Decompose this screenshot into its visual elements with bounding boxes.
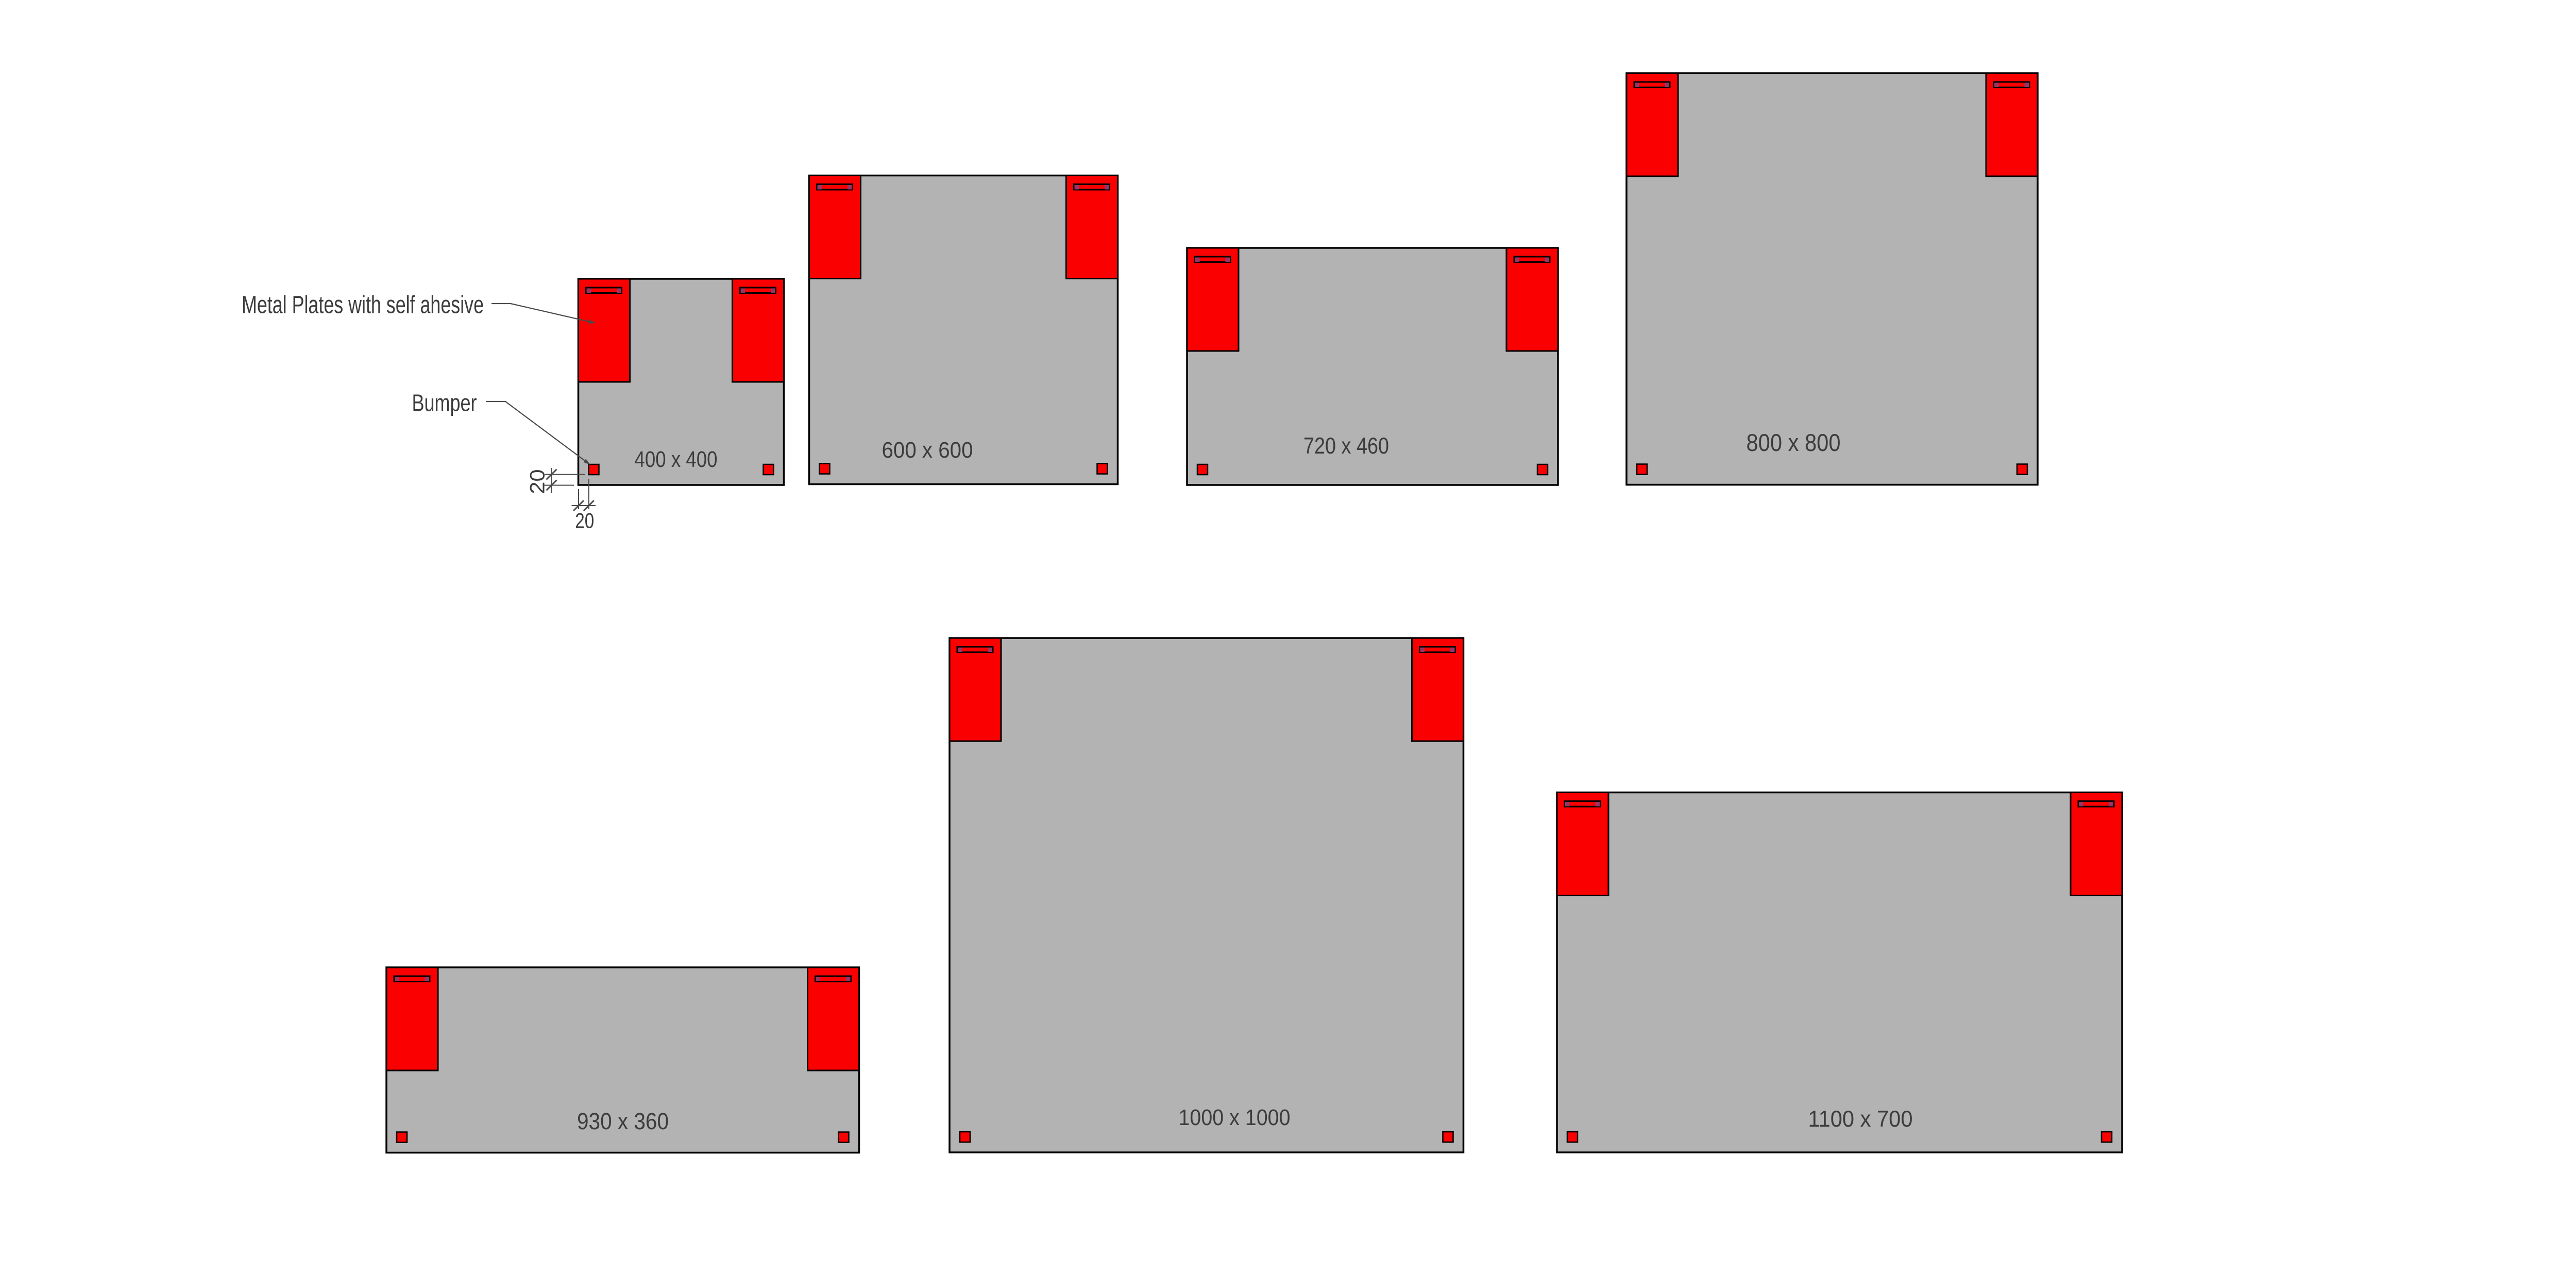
svg-text:400 x 400: 400 x 400 (635, 447, 718, 472)
svg-text:720 x 460: 720 x 460 (1303, 433, 1389, 459)
svg-text:Metal Plates with self ahesive: Metal Plates with self ahesive (242, 292, 484, 319)
svg-text:Bumper: Bumper (412, 390, 477, 416)
svg-text:1000 x 1000: 1000 x 1000 (1179, 1105, 1291, 1130)
svg-text:20: 20 (527, 470, 549, 494)
svg-text:800 x 800: 800 x 800 (1747, 429, 1841, 457)
svg-text:600 x 600: 600 x 600 (882, 438, 973, 463)
svg-text:930 x 360: 930 x 360 (577, 1108, 669, 1134)
svg-text:20: 20 (575, 509, 594, 533)
svg-text:1100 x 700: 1100 x 700 (1808, 1107, 1913, 1132)
